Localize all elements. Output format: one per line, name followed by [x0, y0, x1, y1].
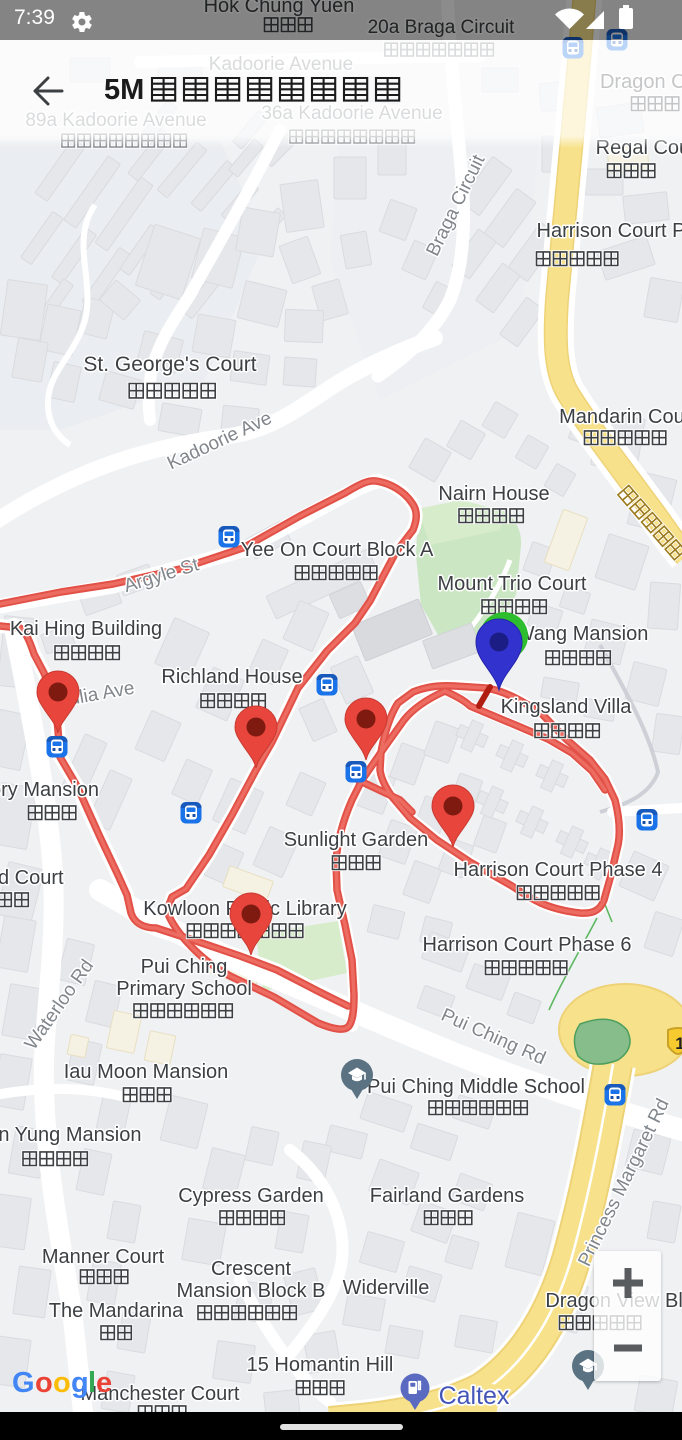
svg-text:Kingsland Villa: Kingsland Villa — [501, 696, 633, 718]
svg-text:Kai Hing Building: Kai Hing Building — [10, 618, 162, 640]
svg-text:Wang Mansion: Wang Mansion — [516, 623, 649, 645]
svg-text:o: o — [53, 1367, 71, 1399]
svg-text:Victory Mansion: Victory Mansion — [0, 779, 99, 801]
svg-text:Fairland Gardens: Fairland Gardens — [370, 1185, 525, 1207]
svg-text:Richland House: Richland House — [161, 666, 302, 688]
svg-text:Sunlight Garden: Sunlight Garden — [284, 829, 429, 851]
svg-text:1: 1 — [675, 1034, 682, 1053]
svg-text:Widerville: Widerville — [343, 1277, 430, 1299]
svg-text:Primary School: Primary School — [116, 978, 252, 1000]
svg-text:Harrison Court Phase 4: Harrison Court Phase 4 — [454, 859, 663, 881]
svg-text:l: l — [88, 1367, 96, 1399]
svg-text:G: G — [12, 1367, 35, 1399]
svg-text:Nairn House: Nairn House — [438, 483, 549, 505]
svg-text:Manner Court: Manner Court — [42, 1246, 165, 1268]
svg-text:Harrison Court Phase 6: Harrison Court Phase 6 — [423, 934, 632, 956]
svg-text:The Mandarina: The Mandarina — [49, 1300, 184, 1322]
svg-text:Iau Moon Mansion: Iau Moon Mansion — [64, 1061, 229, 1083]
svg-text:Mandarin Court: Mandarin Court — [559, 406, 682, 428]
svg-text:e: e — [96, 1367, 112, 1399]
svg-text:15 Homantin Hill: 15 Homantin Hill — [247, 1354, 394, 1376]
svg-text:Pui Ching: Pui Ching — [141, 956, 228, 978]
svg-text:Man Yung Mansion: Man Yung Mansion — [0, 1124, 141, 1146]
svg-text:Mansion Block B: Mansion Block B — [177, 1280, 326, 1302]
svg-text:o: o — [35, 1367, 53, 1399]
svg-text:Harrison Court Phase 2: Harrison Court Phase 2 — [537, 220, 682, 242]
svg-text:Crescent: Crescent — [211, 1258, 291, 1280]
svg-text:g: g — [71, 1367, 89, 1399]
svg-text:Cypress Garden: Cypress Garden — [178, 1185, 324, 1207]
svg-text:Pui Ching Middle School: Pui Ching Middle School — [367, 1076, 585, 1098]
svg-text:d Court: d Court — [0, 867, 64, 889]
svg-text:Yee On Court Block A: Yee On Court Block A — [241, 539, 434, 561]
svg-text:Mount Trio Court: Mount Trio Court — [438, 573, 587, 595]
svg-text:St. George's Court: St. George's Court — [83, 353, 256, 376]
svg-text:Caltex: Caltex — [439, 1382, 510, 1410]
